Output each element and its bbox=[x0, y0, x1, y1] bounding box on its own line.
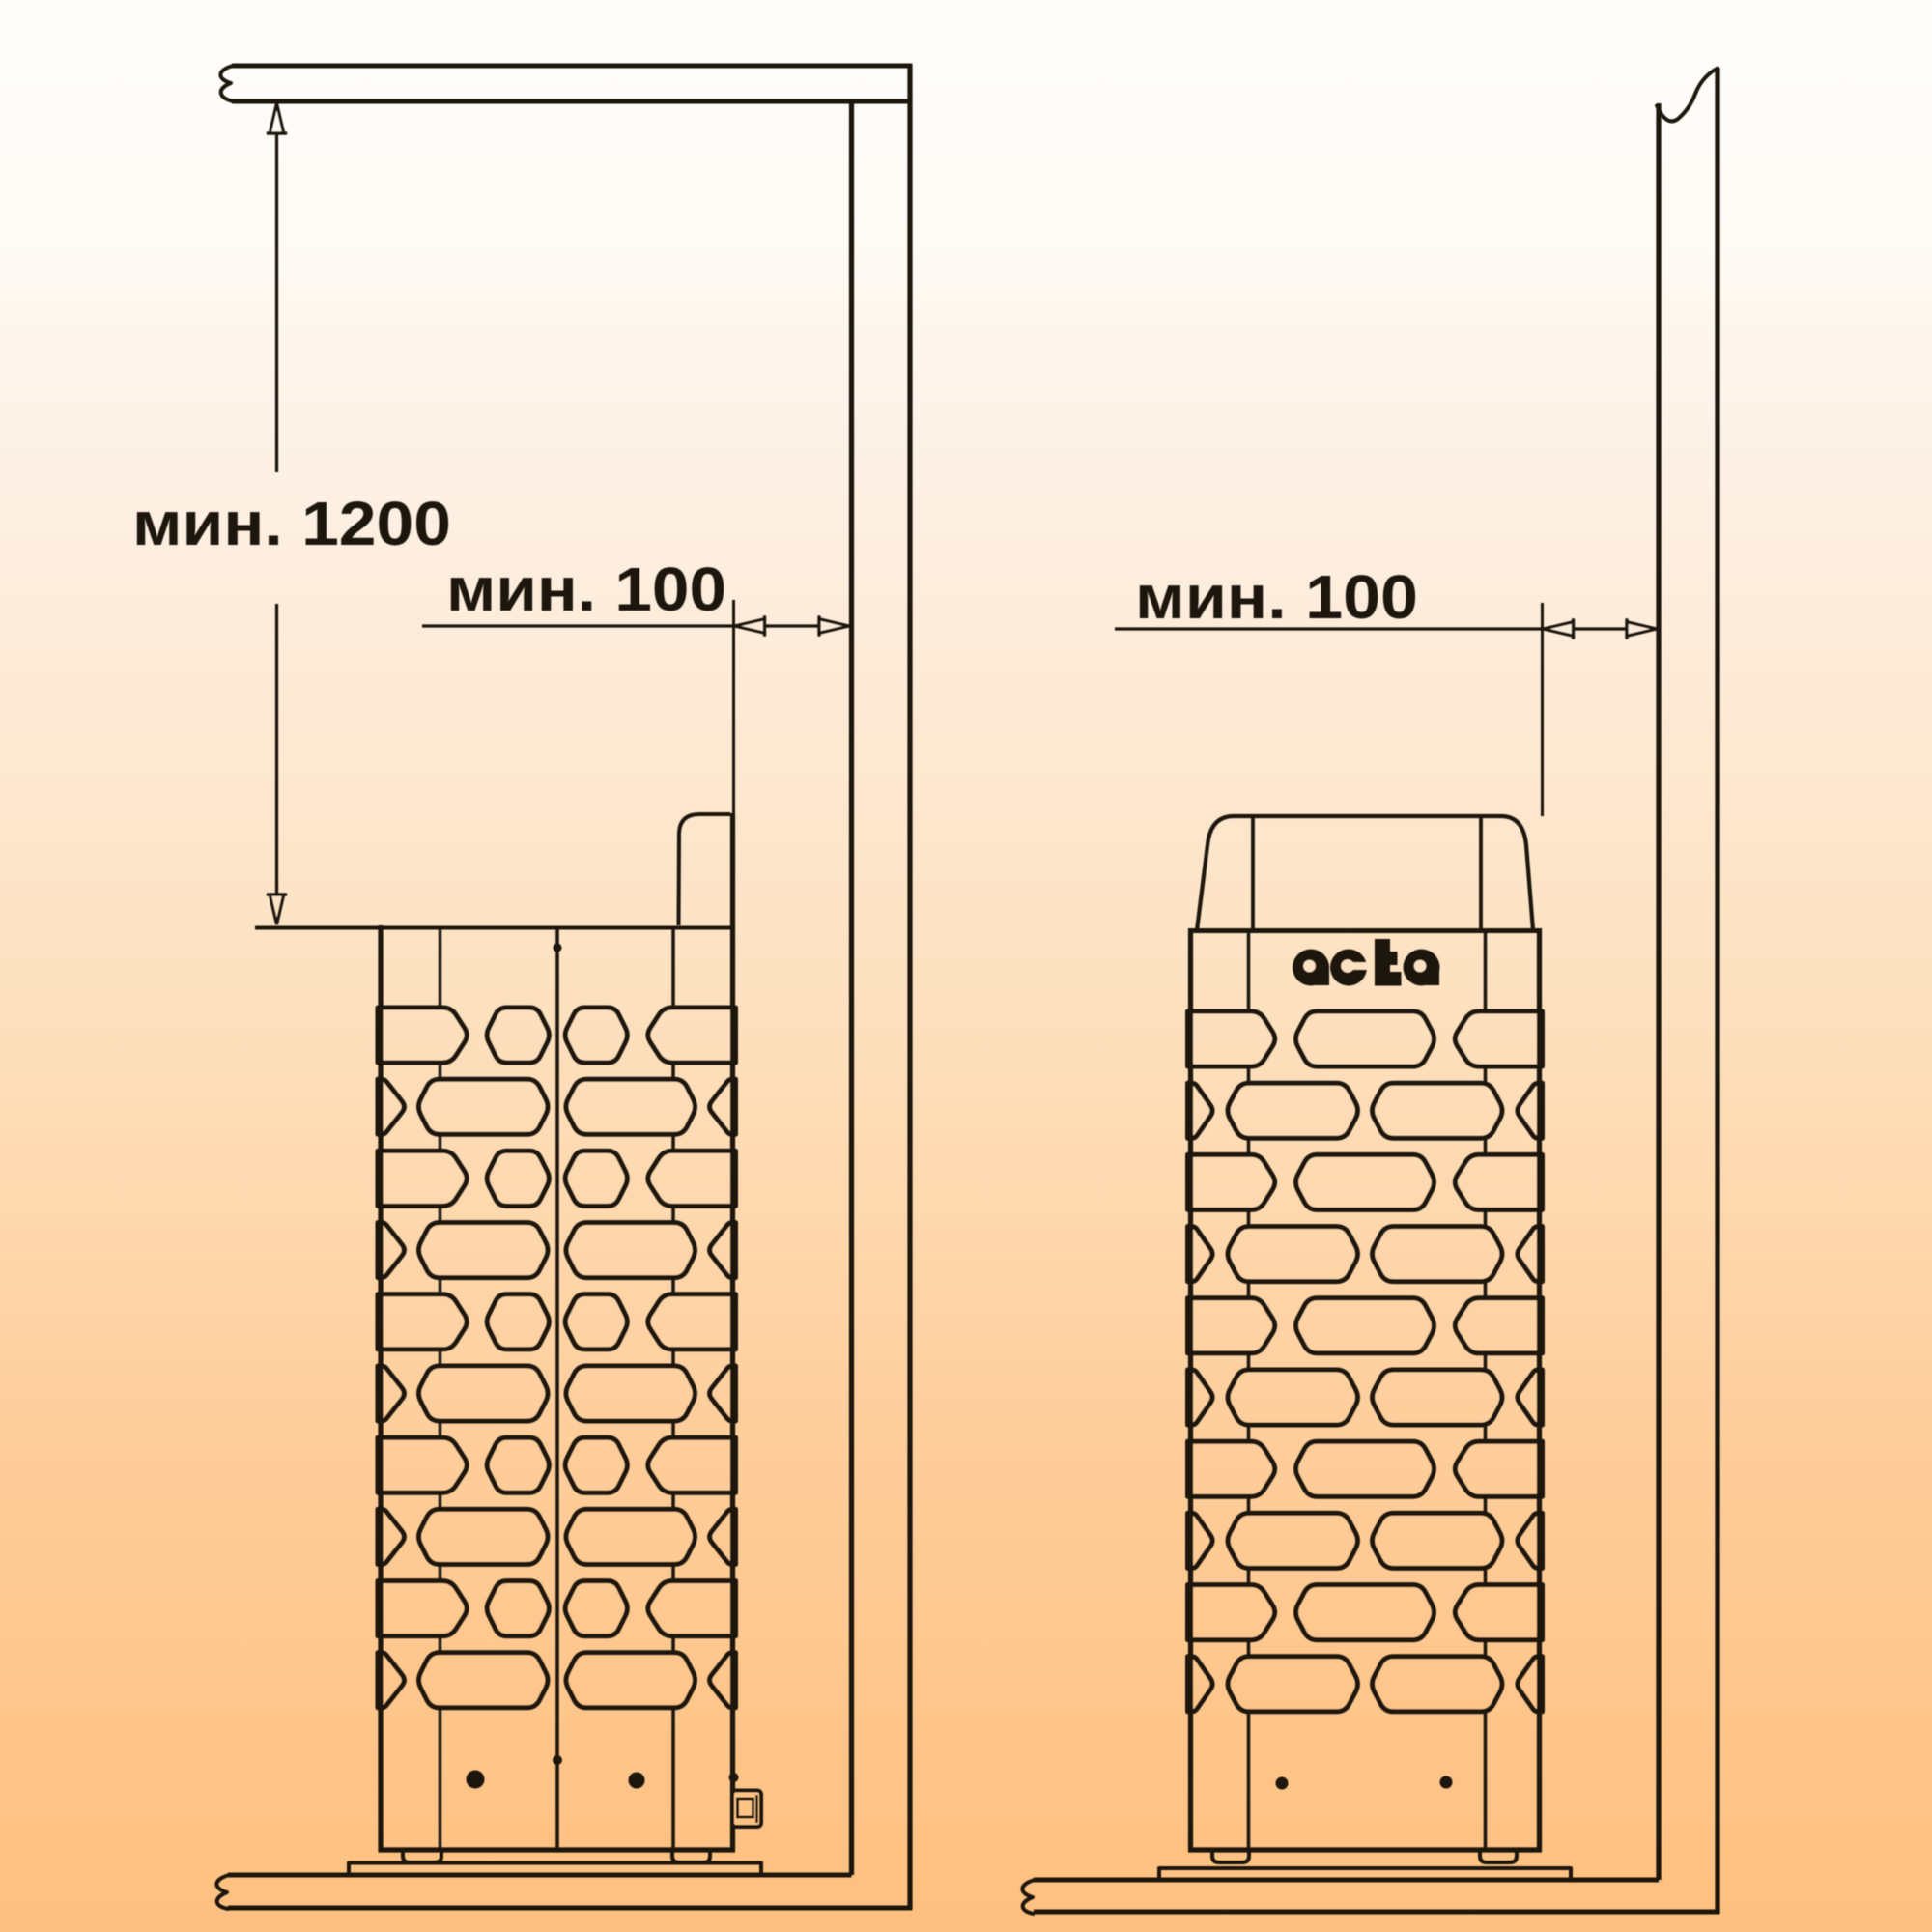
svg-text:мин. 100: мин. 100 bbox=[1135, 562, 1418, 632]
svg-text:мин. 1200: мин. 1200 bbox=[132, 489, 451, 558]
svg-text:мин. 100: мин. 100 bbox=[446, 554, 726, 624]
